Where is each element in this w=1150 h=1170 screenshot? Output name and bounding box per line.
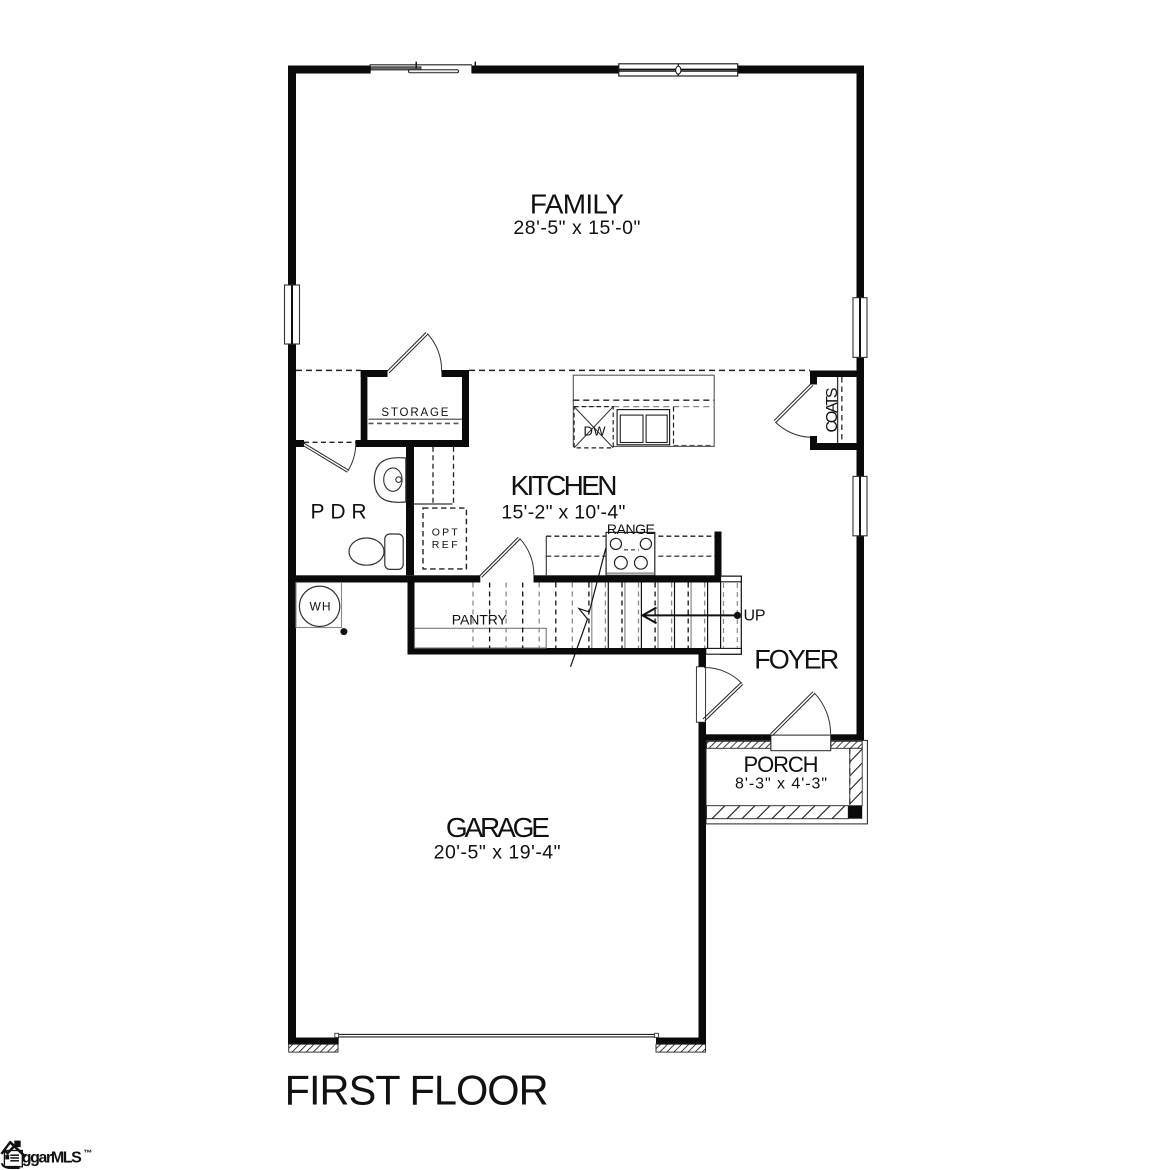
svg-text:UP: UP [744, 608, 766, 625]
svg-text:PANTRY: PANTRY [452, 612, 508, 628]
svg-text:FOYER: FOYER [754, 645, 839, 675]
svg-text:KITCHEN: KITCHEN [511, 470, 618, 501]
svg-text:ggarMLS: ggarMLS [22, 1149, 82, 1166]
svg-text:COATS: COATS [824, 388, 841, 433]
svg-text:20'-5" x 19'-4": 20'-5" x 19'-4" [434, 842, 561, 864]
svg-text:RANGE: RANGE [607, 521, 655, 537]
svg-text:FIRST FLOOR: FIRST FLOOR [285, 1066, 549, 1113]
svg-text:15'-2" x 10'-4": 15'-2" x 10'-4" [501, 501, 625, 523]
svg-text:OPT: OPT [432, 526, 459, 538]
svg-text:8'-3" x 4'-3": 8'-3" x 4'-3" [735, 776, 827, 793]
svg-text:28'-5" x 15'-0": 28'-5" x 15'-0" [513, 217, 640, 239]
svg-text:PDR: PDR [311, 501, 367, 524]
svg-text:™: ™ [83, 1148, 92, 1158]
svg-text:WH: WH [310, 600, 331, 614]
svg-text:PORCH: PORCH [744, 752, 819, 777]
svg-text:DW: DW [584, 423, 607, 438]
svg-text:GARAGE: GARAGE [446, 812, 550, 843]
svg-text:REF: REF [432, 539, 458, 551]
svg-text:FAMILY: FAMILY [530, 189, 624, 220]
svg-text:STORAGE: STORAGE [381, 407, 448, 419]
